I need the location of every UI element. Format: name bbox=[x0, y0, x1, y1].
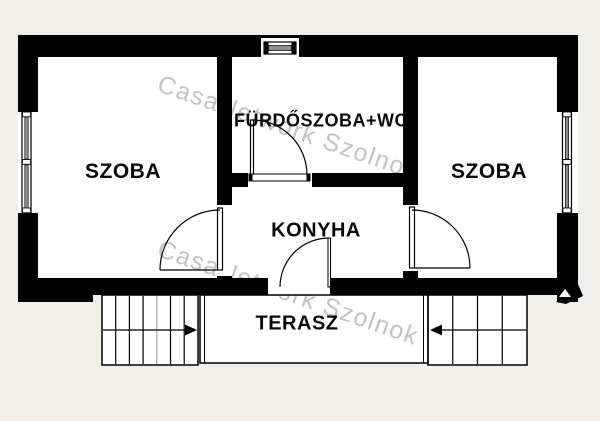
room-label-left: SZOBA bbox=[85, 160, 161, 184]
room-label-terrace: TERASZ bbox=[256, 313, 339, 336]
stairs-left bbox=[102, 295, 198, 365]
door-right-room bbox=[410, 207, 471, 268]
window-right bbox=[563, 112, 572, 213]
stairs-up-arrow-right-icon bbox=[185, 325, 197, 336]
wall-bottom-left-corner bbox=[18, 278, 93, 302]
floorplan-canvas: CasaNetwork Szolnok CasaNetwork Szolnok bbox=[0, 0, 600, 421]
room-label-bathroom: FÜRDŐSZOBA+WC bbox=[234, 111, 408, 132]
stairs-right bbox=[428, 295, 527, 365]
floorplan-drawing bbox=[0, 0, 600, 421]
window-left bbox=[22, 112, 31, 213]
window-top bbox=[264, 42, 296, 54]
room-label-right: SZOBA bbox=[451, 160, 527, 184]
stairs-up-arrow-left-icon bbox=[430, 325, 442, 336]
terrace-door-opening bbox=[268, 278, 330, 295]
room-label-kitchen: KONYHA bbox=[271, 220, 361, 243]
door-left-room bbox=[160, 208, 223, 270]
